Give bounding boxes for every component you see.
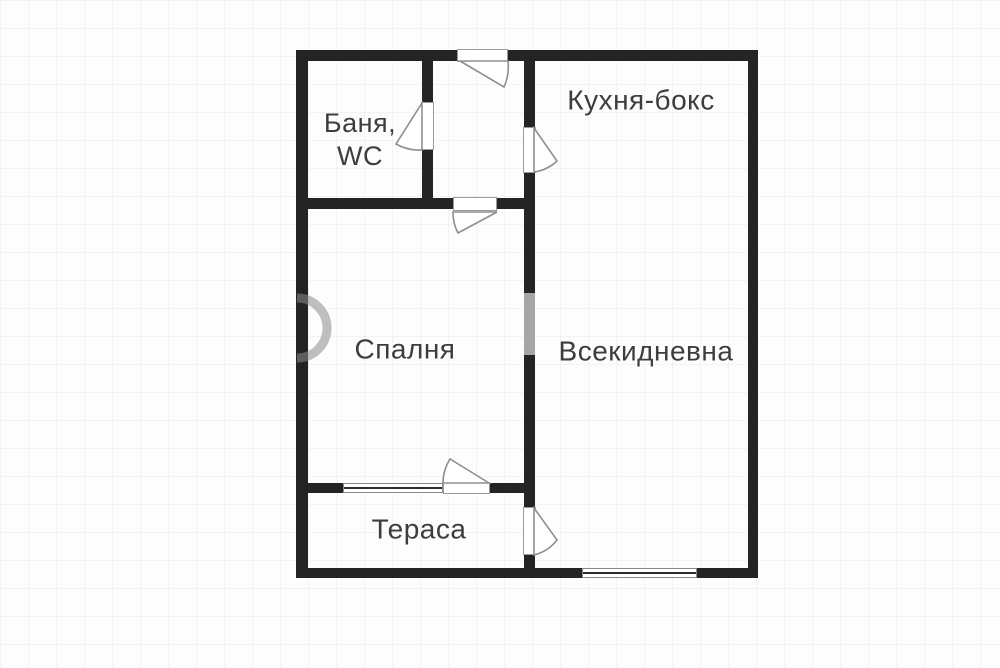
wall-top-right-segment [508, 50, 758, 61]
terrace-living-door-opening [523, 507, 536, 555]
terrace-window [343, 483, 443, 493]
kitchen-door-opening [523, 127, 536, 173]
wall-top-left-segment [296, 50, 458, 61]
bedroom-hall-door-opening [453, 197, 497, 211]
room-label-kitchen: Кухня-бокс [567, 84, 714, 117]
entrance-door-opening [457, 49, 508, 62]
floor-plan-canvas: Баня, WC Кухня-бокс Спалня Всекидневна Т… [0, 0, 1000, 668]
room-label-bedroom: Спалня [355, 333, 456, 366]
terrace-window-pane-line [344, 487, 442, 489]
kitchen-door-arc-icon [534, 128, 557, 172]
wall-bathroom-hall-bottom [296, 198, 535, 209]
terrace-door-arc-icon [443, 459, 489, 483]
room-label-bathroom: Баня, WC [324, 107, 396, 173]
living-room-window [582, 568, 697, 578]
bedroom-door-arc-icon [453, 212, 497, 233]
bathroom-door-opening [421, 102, 434, 150]
bedroom-terrace-door-opening [443, 482, 490, 494]
bathroom-door-arc-icon [396, 103, 422, 150]
living-room-window-pane-line [583, 572, 696, 574]
room-label-bathroom-line1: Баня, [324, 107, 396, 140]
entrance-door-arc-icon [460, 61, 508, 87]
room-label-terrace: Тераса [372, 513, 467, 546]
wall-right-outer [748, 50, 758, 578]
room-label-living-room: Всекидневна [559, 335, 734, 368]
room-label-bathroom-line2: WC [324, 140, 396, 173]
living-room-door-arc-icon [534, 508, 557, 555]
wall-left-outer [296, 50, 308, 578]
